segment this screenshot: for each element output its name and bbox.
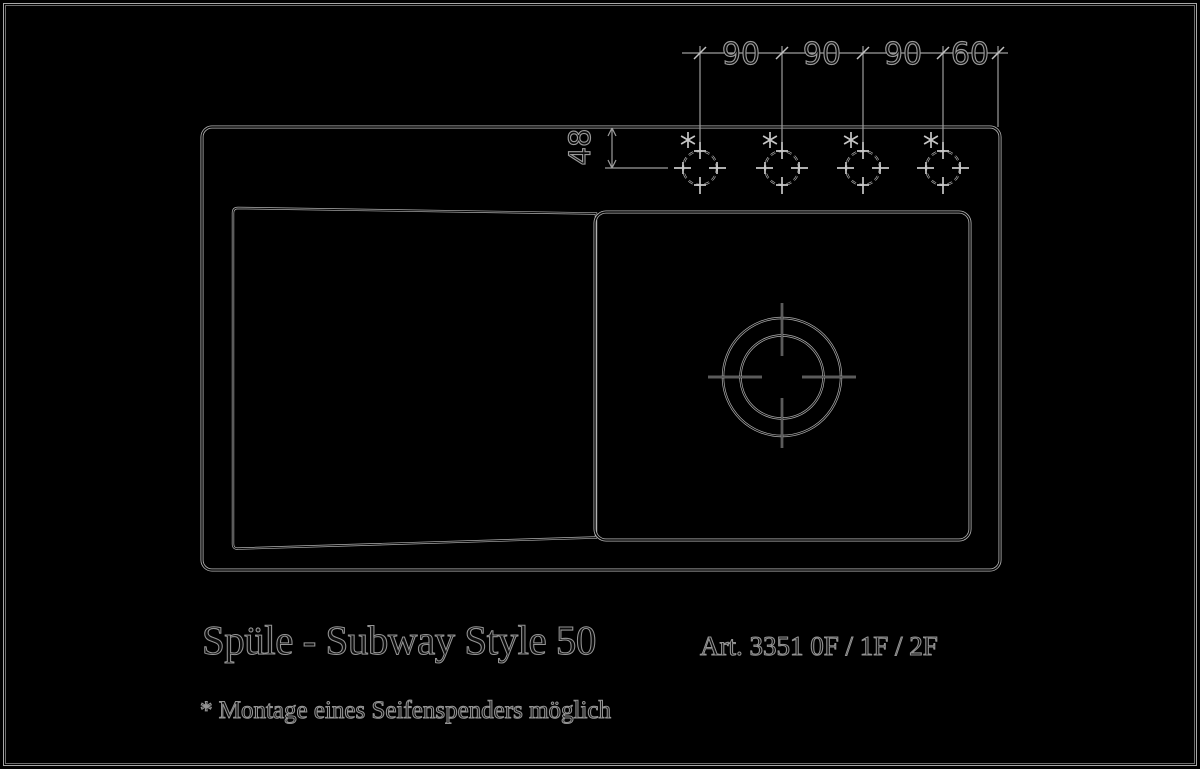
technical-drawing-page: { "page": { "background": "#000000", "fr…	[0, 0, 1200, 769]
dim-label-60: 60	[951, 37, 989, 72]
dim-label-90-3: 90	[884, 37, 922, 72]
sink-technical-drawing: 90 90 90 60 48	[0, 0, 1200, 769]
drawing-title: Spüle - Subway Style 50	[202, 620, 596, 661]
drainboard-outline	[233, 208, 596, 549]
footnote-soap-dispenser: * Montage eines Seifenspenders möglich	[200, 698, 611, 723]
article-number: Art. 3351 0F / 1F / 2F	[700, 633, 938, 660]
dim-label-90-2: 90	[803, 37, 841, 72]
dim-label-90-1: 90	[722, 37, 760, 72]
basin-outline	[595, 212, 970, 540]
dim-label-48: 48	[563, 129, 597, 166]
drain-circle	[708, 303, 856, 448]
side-dimension-line	[605, 128, 668, 168]
sink-outer-outline	[202, 127, 1000, 570]
